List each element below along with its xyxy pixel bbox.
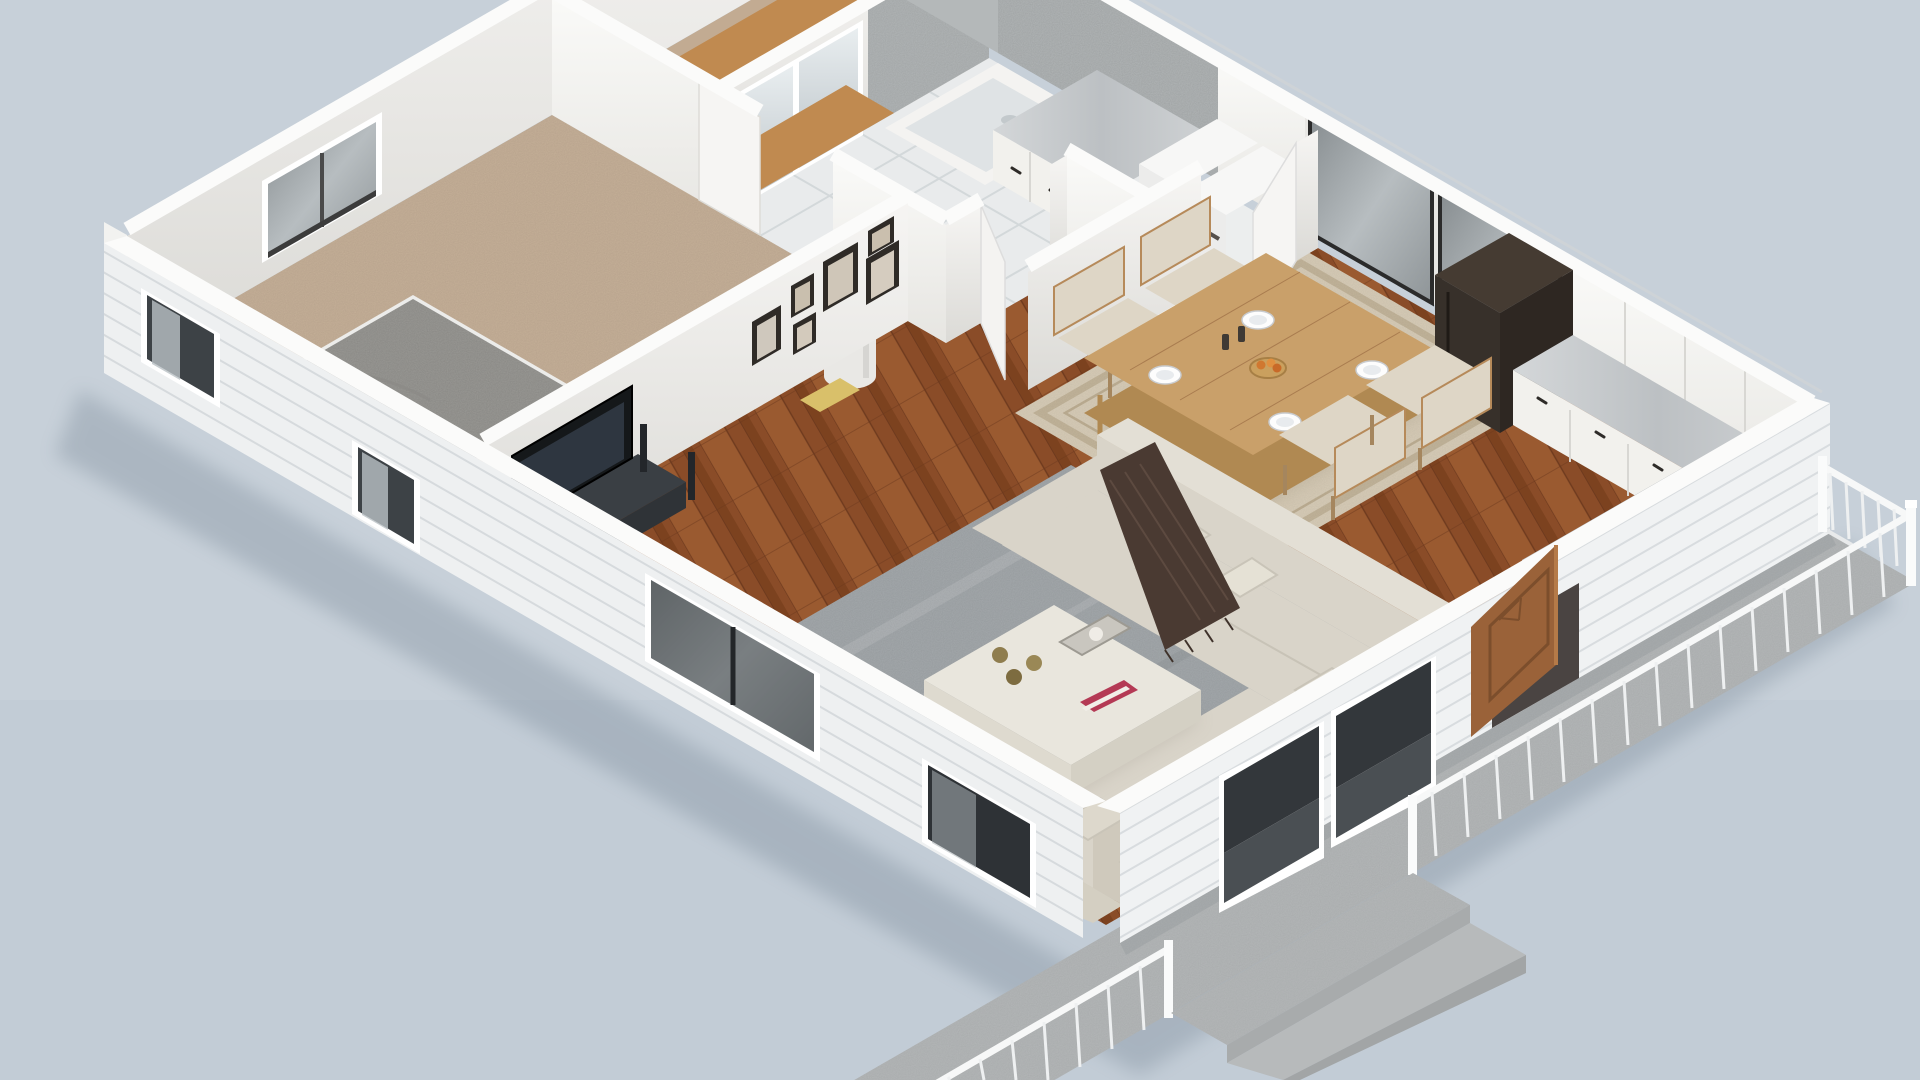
brass-sphere — [1006, 669, 1022, 685]
floorplan-canvas — [0, 0, 1920, 1080]
speaker — [688, 452, 695, 500]
tray-bowl — [1089, 627, 1103, 641]
rail-post — [1408, 795, 1417, 875]
rail-corner-post — [1906, 506, 1916, 586]
speaker — [640, 424, 647, 472]
bottle — [1222, 334, 1229, 350]
fruit-bowl — [1250, 358, 1286, 378]
plate-center — [1363, 365, 1381, 375]
bath-hall-wall-left — [946, 205, 981, 343]
orange — [1273, 364, 1282, 373]
orange — [1257, 361, 1266, 370]
laundry-wall-stub-right — [1296, 130, 1318, 261]
rail-post — [1818, 456, 1827, 532]
rail-post — [1164, 940, 1173, 1018]
brass-sphere — [1026, 655, 1042, 671]
floorplan-render — [0, 0, 1920, 1080]
brass-sphere — [992, 647, 1008, 663]
plate-center — [1249, 315, 1267, 325]
rail-post-cap — [1905, 500, 1917, 508]
plate-center — [1276, 417, 1294, 427]
plate-center — [1156, 370, 1174, 380]
bottle — [1238, 326, 1245, 342]
